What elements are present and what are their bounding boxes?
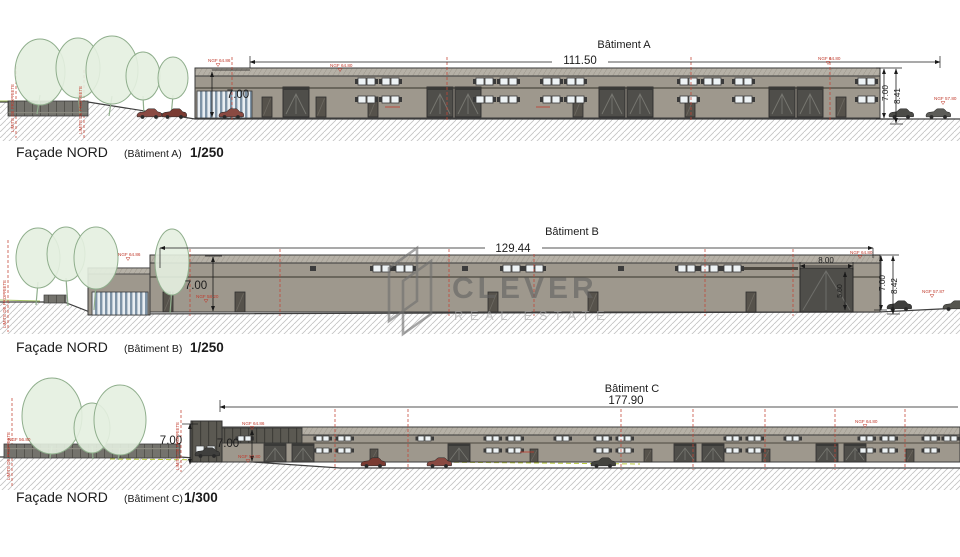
scale-label-b: 1/250 xyxy=(190,340,224,355)
level-roof-left-a: NGF 64.86 xyxy=(208,58,231,63)
watermark-tagline: REAL ESTATE xyxy=(454,308,611,323)
level-roof-right-c: NGF 64.80 xyxy=(855,419,878,424)
property-line-label-c1: LIMITE DE PROPRIETE xyxy=(6,432,11,480)
garage-door-width-dim-b: 8.00 xyxy=(818,256,834,265)
building-a-eave-height-dim: 7.00 xyxy=(227,89,249,101)
building-c-facade xyxy=(191,421,960,462)
level-roof-left-c: NGF 64.86 xyxy=(242,421,265,426)
facade-label-b: Façade NORD xyxy=(16,339,108,355)
level-roof-right-a: NGF 64.80 xyxy=(818,56,841,61)
building-b-width-dim: 129.44 xyxy=(495,243,531,255)
level-roof-mid-a: NGF 64.80 xyxy=(330,63,353,68)
scale-label-a: 1/250 xyxy=(190,145,224,160)
architectural-elevation-sheet: 111.50 7.00 7.00 8.41 NGF 64.86 NGF 64.8… xyxy=(0,0,960,557)
property-line-label-c2: LIMITE DE PROPRIETE xyxy=(175,422,180,470)
building-b-right-eave-dim: 7.00 xyxy=(878,275,887,291)
building-a-right-eave-dim: 7.00 xyxy=(881,85,890,101)
building-c-width-dim: 177.90 xyxy=(608,395,643,407)
trees-c xyxy=(22,378,146,460)
property-line-label-a1: LIMITE DE PROPRIETE xyxy=(10,84,15,132)
facade-ref-a: (Bâtiment A) xyxy=(124,148,182,160)
building-b-right-total-dim: 8.42 xyxy=(890,278,899,294)
building-b-eave-height-dim: 7.00 xyxy=(185,280,207,292)
building-c-title: Bâtiment C xyxy=(605,383,659,395)
section-batiment-c: 177.90 7.00 7.00 NGF 64.86 NGF 64.80 NGF… xyxy=(0,378,960,505)
level-ground-mid-b: NGF 58.20 xyxy=(196,294,219,299)
watermark-brand: CLEVER xyxy=(452,272,598,305)
facade-label-a: Façade NORD xyxy=(16,144,108,160)
building-a-facade xyxy=(195,68,880,118)
section-batiment-a: 111.50 7.00 7.00 8.41 NGF 64.86 NGF 64.8… xyxy=(0,36,960,160)
level-ground-left-c: NGF 56.80 xyxy=(8,437,31,442)
building-c-eave-height-dim-2: 7.00 xyxy=(217,438,239,450)
property-line-label-a2: LIMITE DE PROPRIETE xyxy=(78,86,83,134)
facade-ref-b: (Bâtiment B) xyxy=(124,343,182,355)
level-ground-right-b: NGF 57.87 xyxy=(922,289,945,294)
level-ground-right-a: NGF 57.80 xyxy=(934,96,957,101)
loading-dock-glazing-b xyxy=(92,292,148,315)
facade-ref-c: (Bâtiment C) xyxy=(124,493,183,505)
level-ground-mid-c: NGF 57.80 xyxy=(238,454,261,459)
level-roof-left-b: NGF 64.86 xyxy=(118,252,141,257)
building-a-width-dim: 111.50 xyxy=(563,55,596,67)
building-a-right-total-dim: 8.41 xyxy=(893,88,902,104)
scale-label-c: 1/300 xyxy=(184,490,218,505)
property-line-label-b: LIMITE DE PROPRIETE xyxy=(2,280,7,328)
caption-a: Façade NORD (Bâtiment A) 1/250 xyxy=(16,144,224,160)
level-roof-right-b: NGF 64.80 xyxy=(850,250,873,255)
caption-b: Façade NORD (Bâtiment B) 1/250 xyxy=(16,339,224,355)
facade-label-c: Façade NORD xyxy=(16,489,108,505)
barrier-b xyxy=(44,295,66,303)
garage-door-height-dim-b: 5.60 xyxy=(837,284,844,298)
elevation-drawing: 111.50 7.00 7.00 8.41 NGF 64.86 NGF 64.8… xyxy=(0,0,960,557)
building-b-title: Bâtiment B xyxy=(545,226,599,238)
building-a-title: Bâtiment A xyxy=(597,39,651,51)
caption-c: Façade NORD (Bâtiment C) 1/300 xyxy=(16,489,218,505)
